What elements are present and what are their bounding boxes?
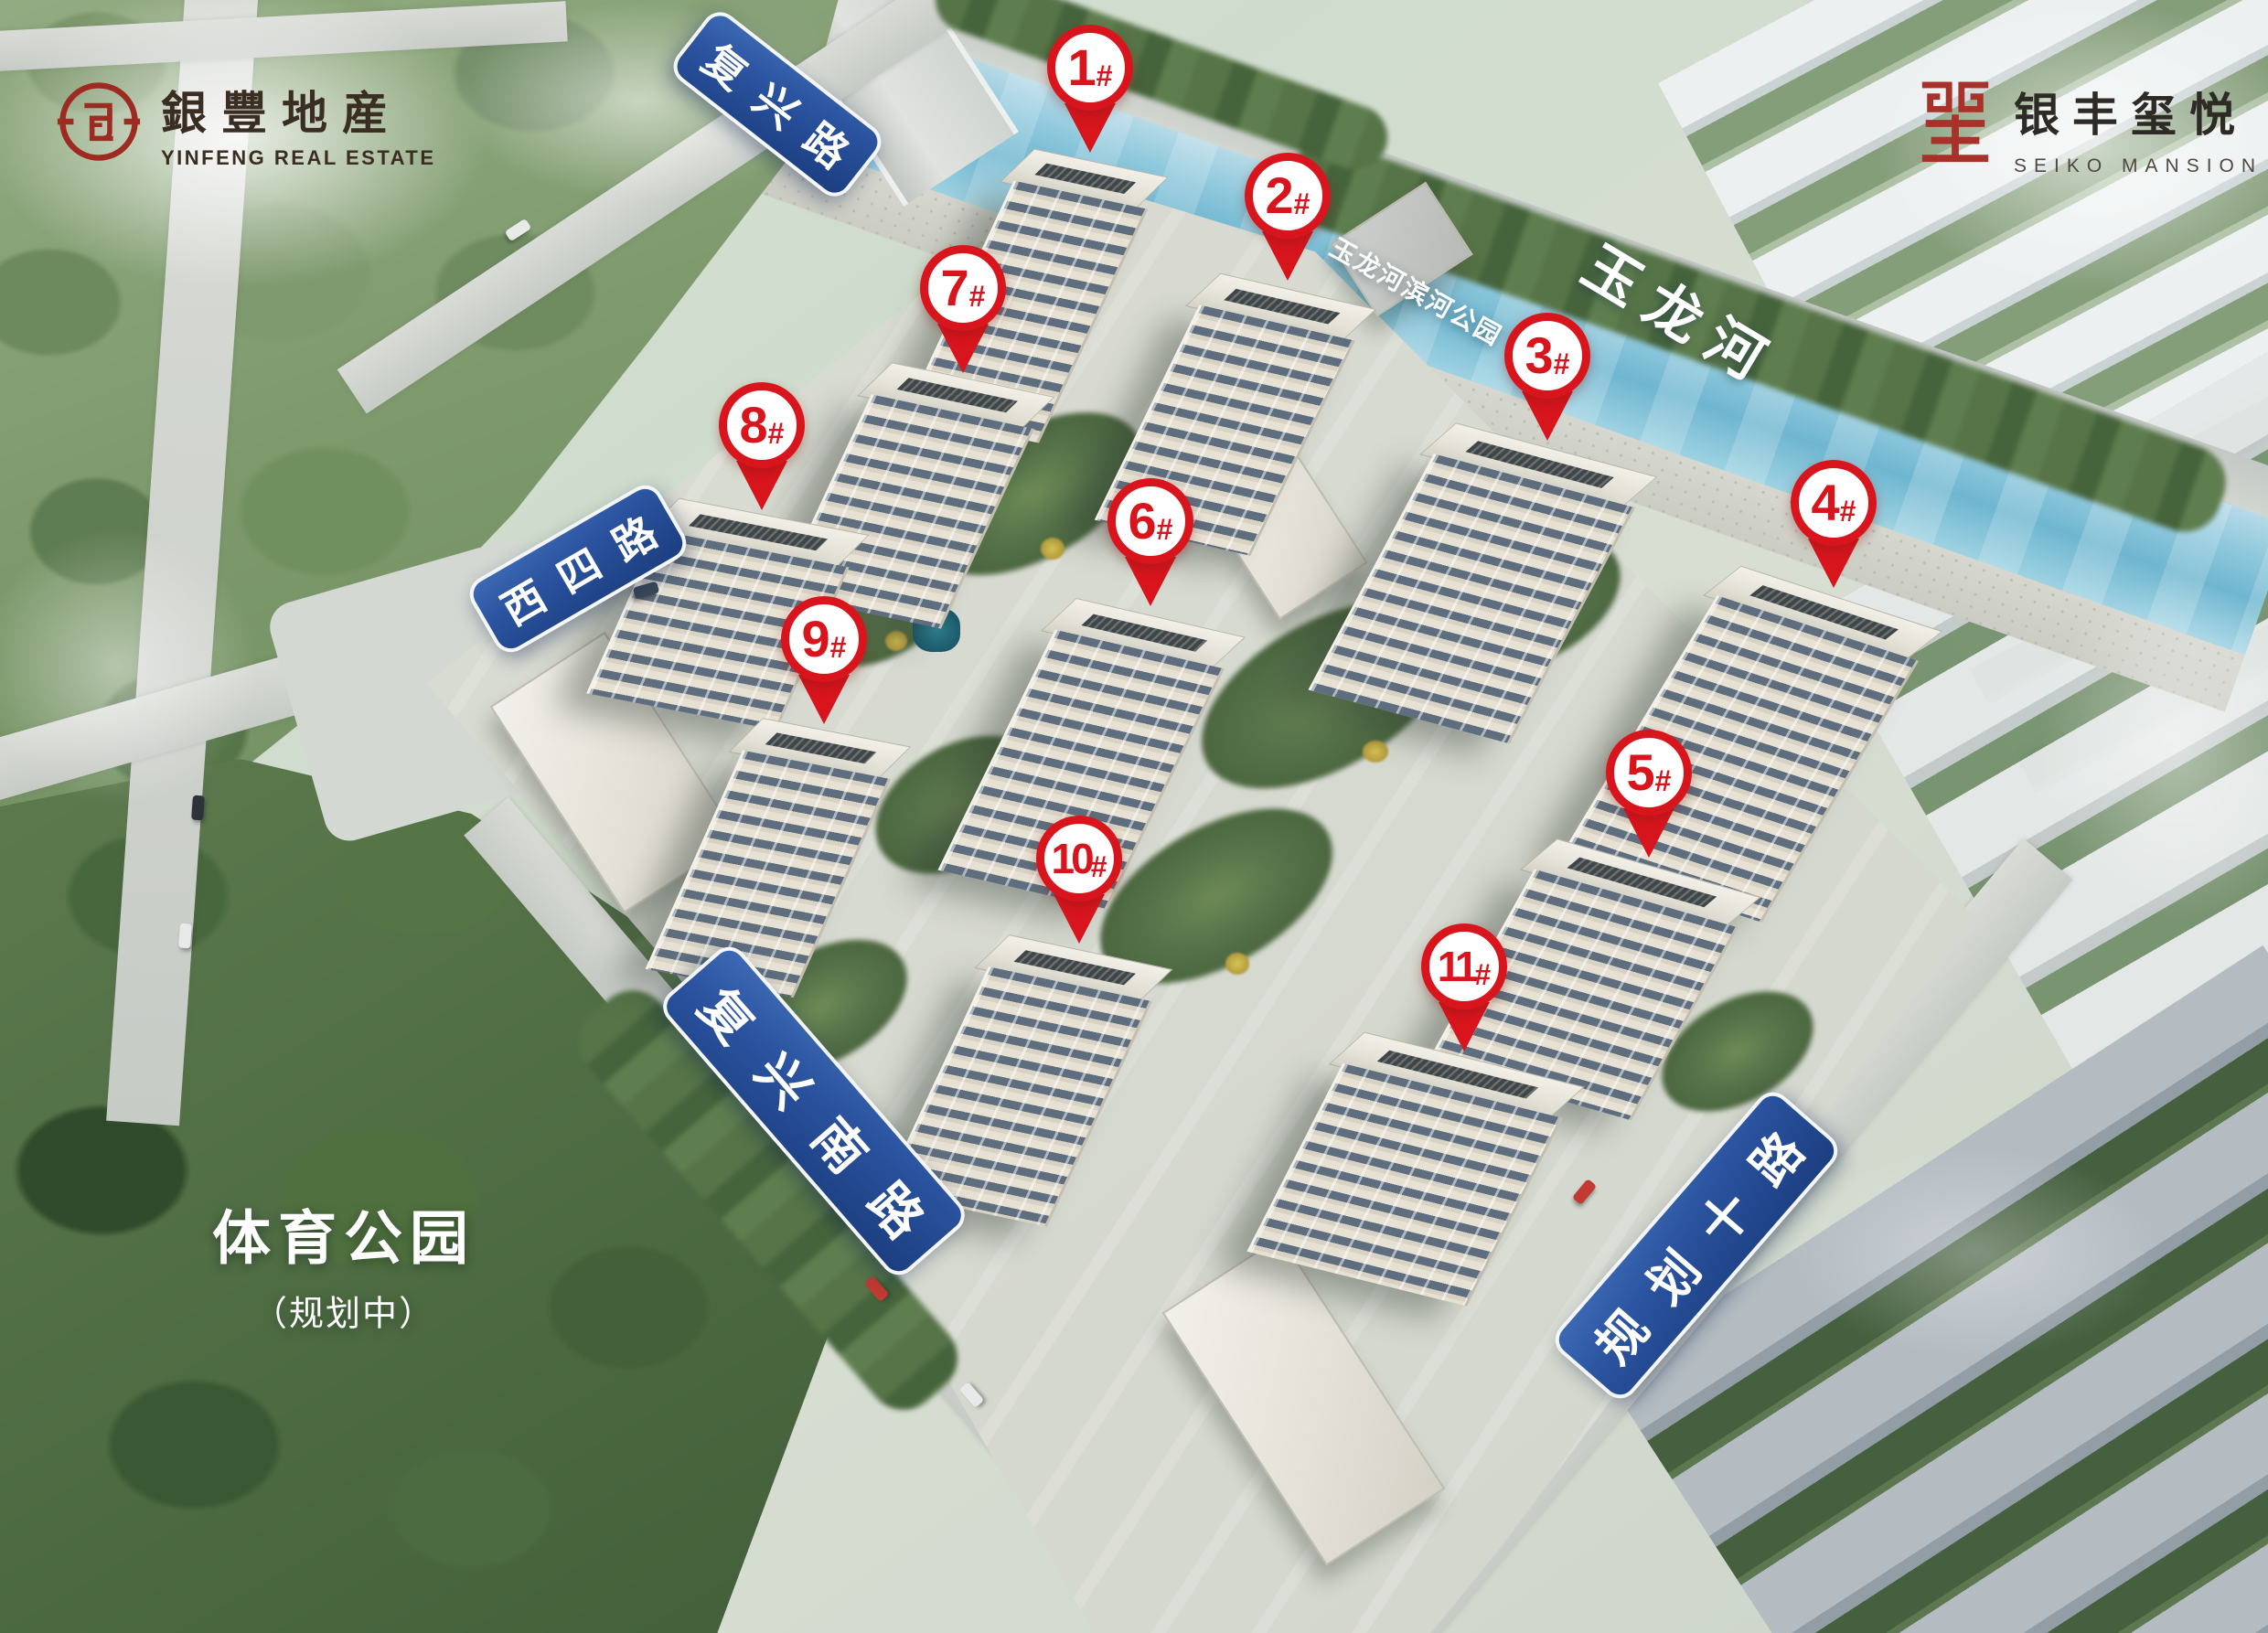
marker-number: 11 bbox=[1438, 945, 1475, 987]
marker-bulb: 8# bbox=[719, 382, 805, 468]
marker-number: 5 bbox=[1627, 747, 1655, 798]
marker-bulb: 3# bbox=[1504, 313, 1590, 399]
marker-bulb: 4# bbox=[1791, 460, 1877, 546]
aerial-site-plan: 复兴路 西四路 复兴南路 规划十路 玉龙河 玉龙河滨河公园 体育公园 （规划中）… bbox=[0, 0, 2268, 1633]
marker-bulb: 1# bbox=[1047, 25, 1133, 111]
marker-number: 6 bbox=[1129, 496, 1157, 547]
marker-hash: # bbox=[1474, 960, 1491, 989]
marker-number: 2 bbox=[1266, 170, 1294, 221]
yinfeng-seal-icon bbox=[57, 80, 141, 168]
yellow-tree bbox=[1363, 741, 1388, 763]
marker-hash: # bbox=[768, 419, 785, 448]
car bbox=[191, 795, 205, 821]
marker-number: 7 bbox=[941, 262, 969, 314]
marker-hash: # bbox=[1097, 61, 1113, 91]
marker-hash: # bbox=[1091, 852, 1107, 881]
sports-park-status: （规划中） bbox=[212, 1286, 476, 1336]
xi-seal-icon bbox=[1915, 79, 1995, 175]
marker-bulb: 7# bbox=[920, 245, 1006, 331]
developer-logo: 銀豐地産 YINFENG REAL ESTATE bbox=[57, 77, 436, 170]
marker-hash: # bbox=[969, 282, 986, 311]
yellow-tree bbox=[885, 631, 907, 651]
sports-park-name: 体育公园 bbox=[212, 1192, 476, 1276]
marker-hash: # bbox=[1294, 189, 1311, 219]
marker-hash: # bbox=[830, 633, 847, 662]
marker-hash: # bbox=[1157, 515, 1173, 544]
marker-number: 8 bbox=[740, 400, 768, 451]
developer-name-en: YINFENG REAL ESTATE bbox=[161, 146, 436, 170]
project-name-en: SEIKO MANSION bbox=[2014, 155, 2263, 177]
marker-number: 3 bbox=[1525, 330, 1554, 381]
marker-hash: # bbox=[1655, 766, 1672, 795]
marker-bulb: 6# bbox=[1107, 478, 1193, 564]
project-name-cn: 银丰玺悦 bbox=[2014, 79, 2263, 144]
marker-number: 1 bbox=[1068, 42, 1097, 93]
marker-hash: # bbox=[1554, 349, 1570, 379]
car bbox=[178, 923, 192, 949]
yellow-tree bbox=[1225, 953, 1249, 975]
marker-bulb: 5# bbox=[1606, 730, 1692, 816]
marker-number: 9 bbox=[802, 614, 830, 665]
marker-bulb: 10# bbox=[1036, 816, 1122, 902]
marker-bulb: 11# bbox=[1421, 923, 1507, 1009]
marker-bulb: 2# bbox=[1245, 153, 1331, 239]
yellow-tree bbox=[1041, 538, 1064, 560]
marker-number: 10 bbox=[1052, 838, 1091, 880]
marker-bulb: 9# bbox=[781, 596, 867, 682]
developer-name-cn: 銀豐地産 bbox=[161, 77, 436, 143]
marker-hash: # bbox=[1840, 496, 1856, 526]
sports-park-label: 体育公园 （规划中） bbox=[212, 1192, 476, 1336]
project-logo: 银丰玺悦 SEIKO MANSION bbox=[1915, 79, 2263, 177]
marker-number: 4 bbox=[1812, 477, 1840, 528]
